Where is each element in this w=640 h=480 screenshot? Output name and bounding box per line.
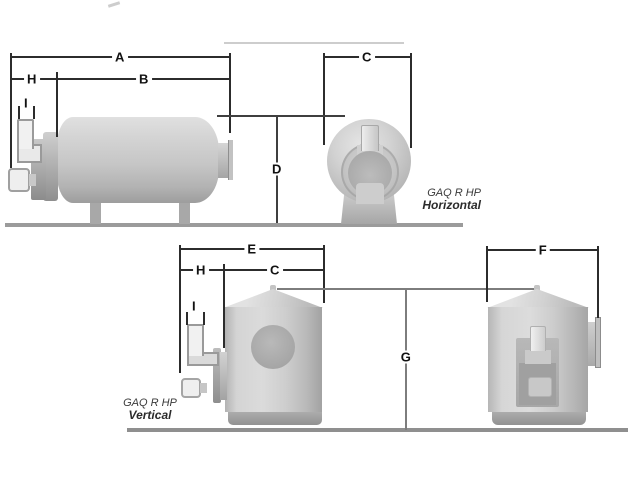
boiler-vertical-front-cone — [487, 289, 589, 308]
boiler-horizontal-leg-left — [90, 200, 101, 224]
caption-vertical-line2: Vertical — [118, 410, 182, 422]
dim-label-d: D — [269, 163, 285, 176]
boiler-vertical-cone — [223, 289, 323, 308]
boiler-horizontal-leg-right — [179, 200, 190, 224]
artifact-line — [224, 42, 404, 44]
gas-valve-stub-top — [29, 174, 36, 186]
dim-ext-left-bottom — [179, 245, 181, 373]
dim-label-h-top: H — [24, 73, 40, 86]
caption-vertical: GAQ R HP Vertical — [118, 398, 182, 421]
dim-ext-tank-top-level — [217, 115, 345, 117]
dim-ext-right-bottom — [323, 245, 325, 303]
dim-ext-f-left — [486, 246, 488, 302]
dim-label-i-top: I — [22, 97, 30, 110]
boiler-vertical-sight-circle — [251, 325, 295, 369]
dim-ext-mid-top — [56, 72, 58, 137]
burner-pipe-top — [17, 119, 34, 149]
dim-ext-mid-bottom — [223, 264, 225, 348]
dim-ext-c-left — [323, 53, 325, 145]
dim-line-hb — [11, 78, 230, 80]
dim-label-i-bottom: I — [190, 300, 198, 313]
dim-label-c-top: C — [359, 51, 375, 64]
gas-valve-box-bottom — [181, 378, 201, 398]
boiler-vertical-front-base — [492, 412, 586, 425]
gas-valve-box-top — [8, 168, 30, 192]
artifact-mark — [108, 1, 120, 8]
ground-line-bottom — [127, 428, 628, 432]
dim-label-c-bottom: C — [267, 264, 283, 277]
front-panel-block — [525, 350, 551, 364]
caption-horizontal-line2: Horizontal — [396, 200, 481, 212]
flue-stub-pipe-top — [361, 125, 379, 151]
front-panel-sight-door — [528, 377, 552, 397]
caption-horizontal: GAQ R HP Horizontal — [396, 188, 481, 211]
dim-tick-i-right-bottom — [203, 312, 205, 325]
dim-ext-right-top — [229, 53, 231, 133]
side-outlet-flange — [595, 317, 601, 368]
dim-ext-left-top — [10, 53, 12, 168]
dim-ext-f-right — [597, 246, 599, 318]
dim-tick-i-right-top — [33, 106, 35, 119]
gas-valve-stub-bottom — [200, 383, 207, 393]
dim-label-f: F — [536, 244, 550, 257]
front-panel-pipe — [530, 326, 546, 351]
dim-label-e: E — [244, 243, 259, 256]
dim-label-g: G — [398, 351, 415, 364]
boiler-horizontal-body — [57, 117, 219, 203]
burner-pipe-bottom — [187, 324, 204, 356]
boiler-vertical-base — [228, 412, 322, 425]
dim-ext-c-right — [410, 53, 412, 148]
dim-label-h-bottom: H — [193, 264, 209, 277]
dim-tick-i-left-top — [18, 106, 20, 119]
burner-mount-plate-bottom-inner — [220, 352, 227, 400]
dim-label-a: A — [112, 51, 128, 64]
boiler-horizontal-nozzle-flange — [228, 140, 233, 180]
burner-block-front — [356, 183, 384, 204]
boiler-dimension-diagram: A H B I C D GAQ R HP Horizontal E H C — [0, 0, 640, 480]
dim-label-b: B — [136, 73, 152, 86]
dim-tick-i-left-bottom — [186, 312, 188, 325]
